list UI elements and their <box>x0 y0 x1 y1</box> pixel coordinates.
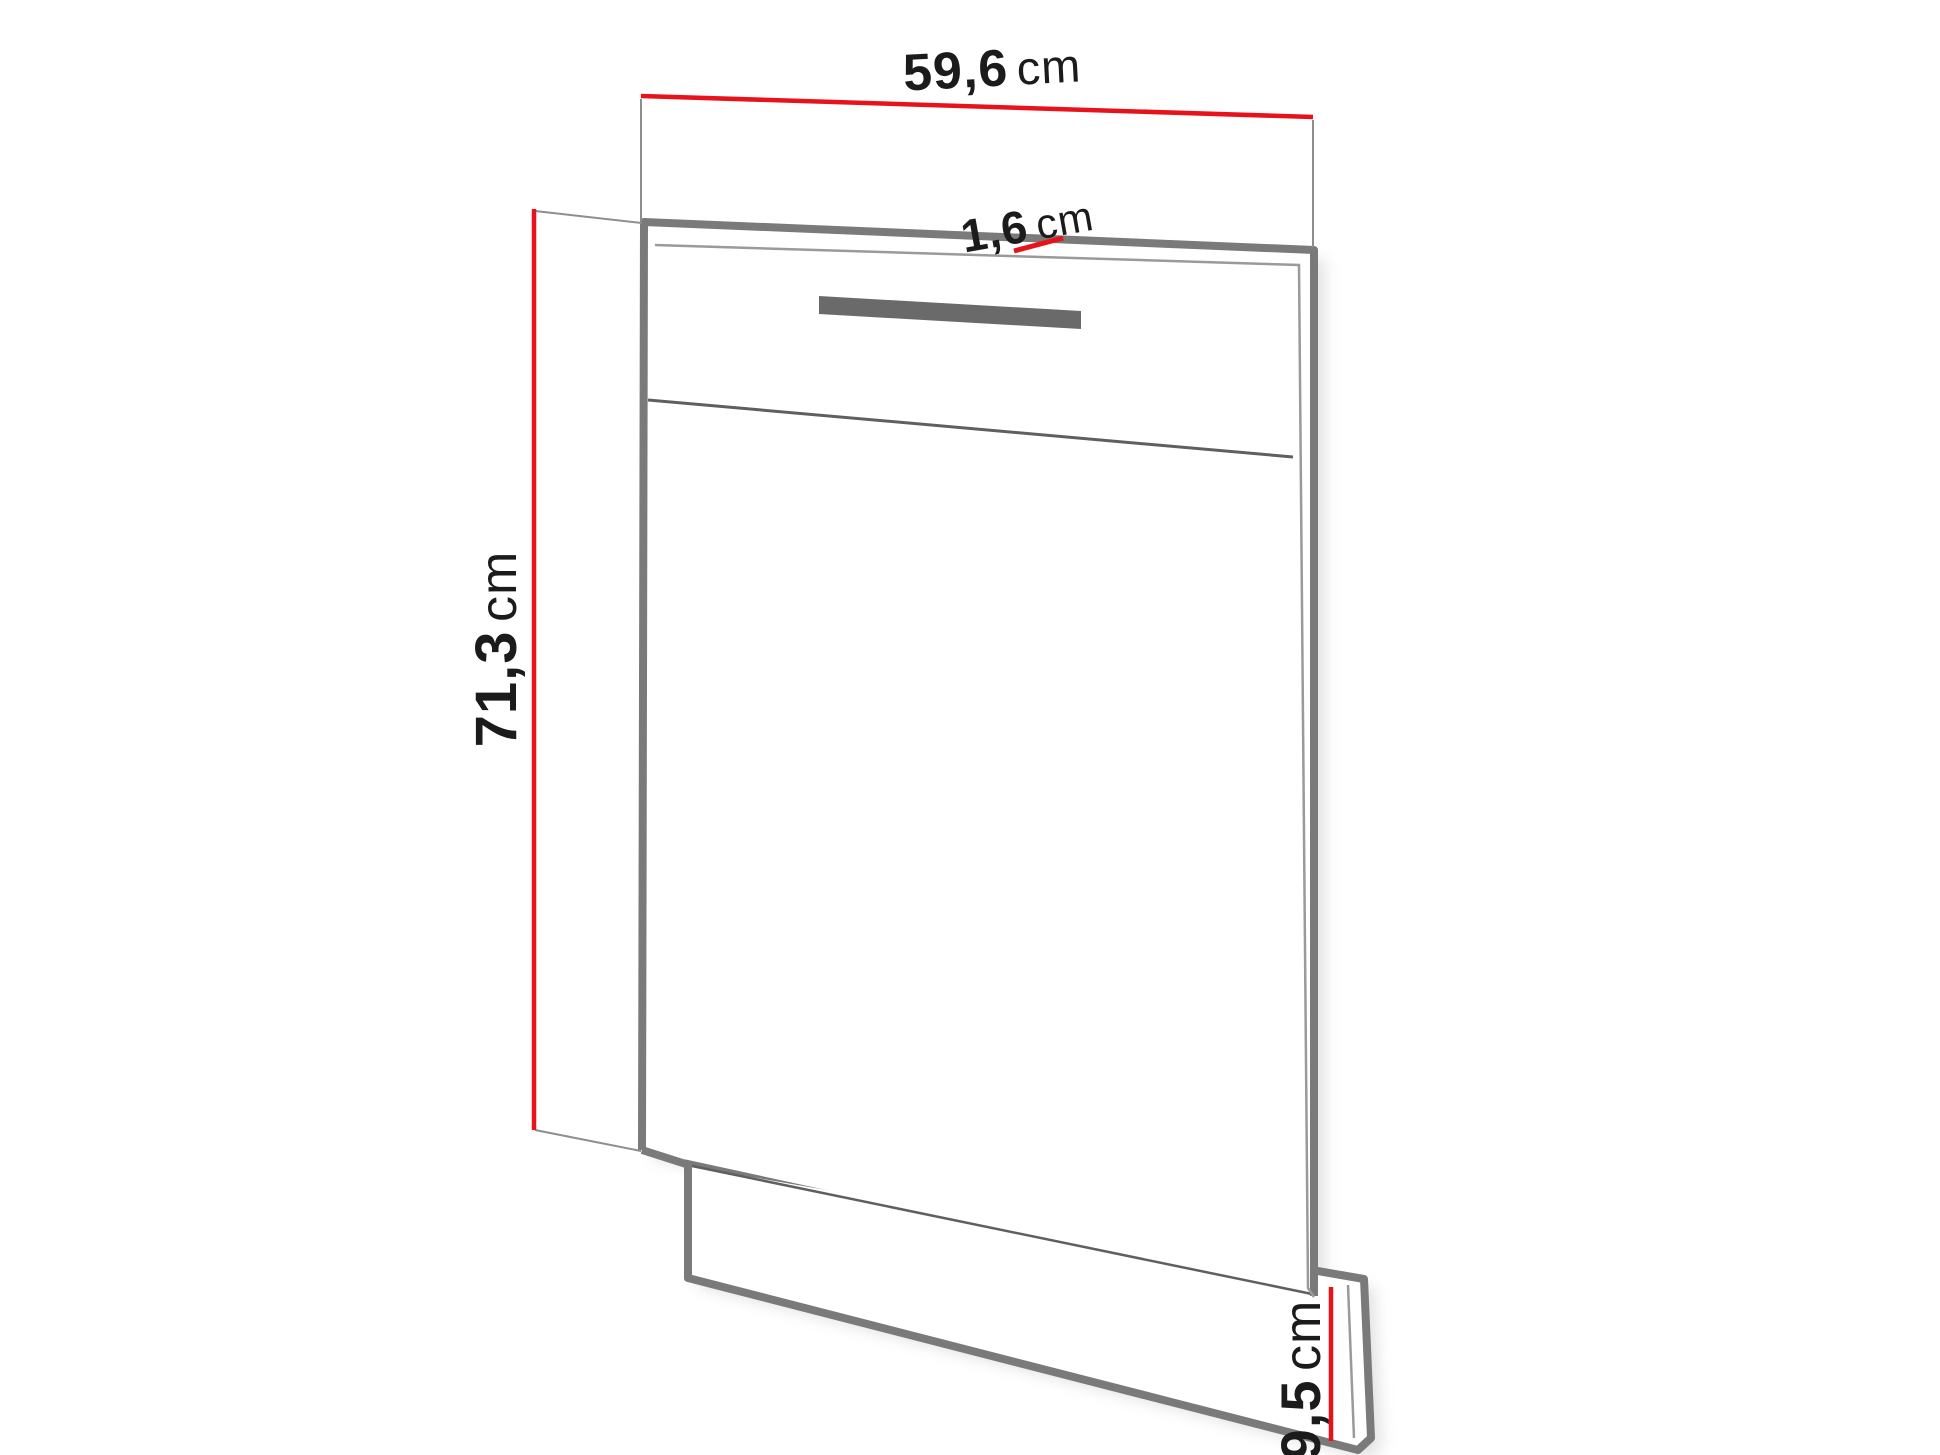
width-unit: cm <box>1015 38 1082 94</box>
panel-front-face <box>642 222 1314 1296</box>
height-value: 71,3 <box>464 630 529 747</box>
thickness-unit: cm <box>1032 192 1097 248</box>
dimension-diagram: 59,6 cm 1,6 cm 71,3 cm 9,5 cm <box>0 0 1940 1455</box>
plinth-height-value: 9,5 <box>1269 1379 1332 1455</box>
width-value: 59,6 <box>902 39 1010 102</box>
width-label: 59,6 cm <box>902 35 1083 102</box>
plinth-height-unit: cm <box>1274 1300 1332 1371</box>
dimension-diagram-page: 59,6 cm 1,6 cm 71,3 cm 9,5 cm <box>0 0 1940 1455</box>
main-panel <box>642 222 1314 1297</box>
height-label: 71,3 cm <box>464 551 529 748</box>
height-unit: cm <box>470 551 528 622</box>
